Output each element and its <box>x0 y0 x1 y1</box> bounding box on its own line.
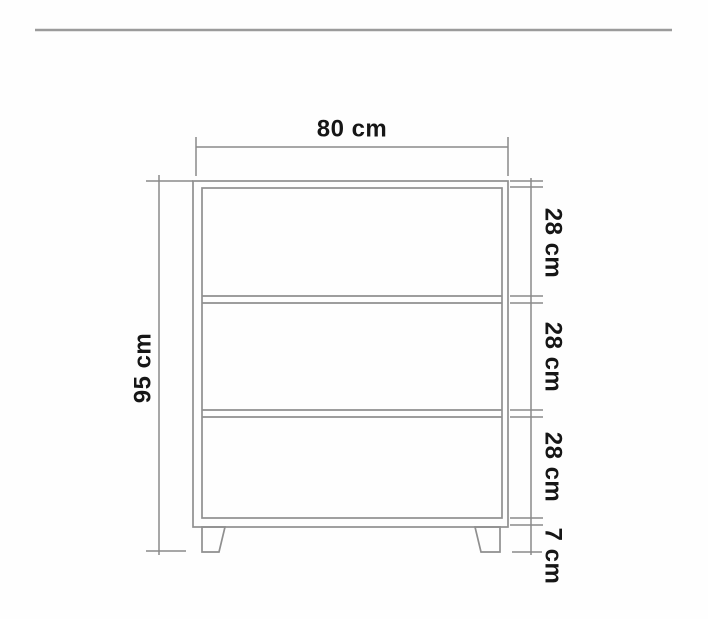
width-dimension <box>196 137 508 176</box>
shelf-section-label-1: 28 cm <box>540 208 567 279</box>
cabinet-drawing-svg: 80 cm 95 cm 28 cm 28 cm 28 cm 7 cm <box>0 0 708 619</box>
leg-height-label: 7 cm <box>540 528 567 585</box>
cabinet-leg-left <box>202 527 225 552</box>
furniture-dimension-diagram: 80 cm 95 cm 28 cm 28 cm 28 cm 7 cm <box>0 0 708 619</box>
cabinet-outline <box>193 181 508 552</box>
shelf-section-label-3: 28 cm <box>540 432 567 503</box>
shelf-section-label-2: 28 cm <box>540 322 567 393</box>
cabinet-outer-rect <box>193 181 508 527</box>
cabinet-leg-right <box>475 527 500 552</box>
section-dimensions <box>510 178 543 555</box>
cabinet-inner-rect <box>202 188 502 518</box>
height-dimension-label: 95 cm <box>130 333 157 404</box>
width-dimension-label: 80 cm <box>317 116 388 143</box>
